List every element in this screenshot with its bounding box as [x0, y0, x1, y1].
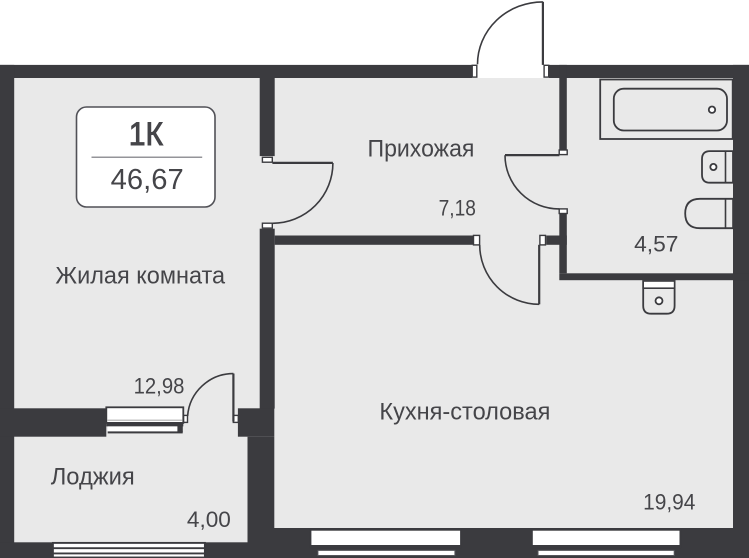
svg-text:Кухня-столовая: Кухня-столовая — [379, 399, 550, 426]
svg-text:46,67: 46,67 — [111, 164, 184, 196]
svg-text:7,18: 7,18 — [439, 196, 476, 221]
svg-text:19,94: 19,94 — [643, 490, 695, 515]
svg-text:4,57: 4,57 — [634, 231, 678, 256]
svg-text:Лоджия: Лоджия — [51, 464, 135, 491]
svg-text:12,98: 12,98 — [134, 373, 185, 398]
svg-text:1К: 1К — [129, 116, 164, 152]
svg-text:4,00: 4,00 — [187, 507, 231, 532]
svg-text:Жилая комната: Жилая комната — [55, 263, 225, 290]
svg-text:Прихожая: Прихожая — [368, 136, 475, 163]
